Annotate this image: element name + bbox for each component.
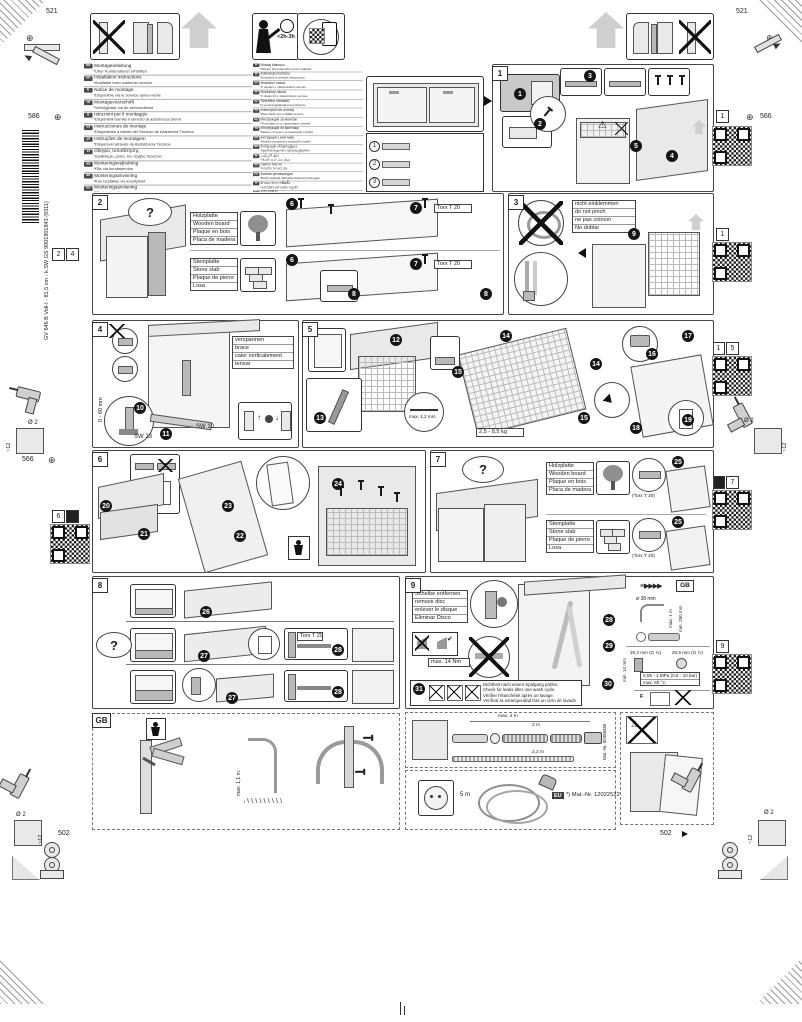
section-ref-box: 5 [726,342,739,355]
part-shape [382,143,410,150]
drain-height-label: max. 1 m [668,598,673,628]
gb-panel-label: GB [92,713,111,728]
drain-diameter-label: ø 38 mm [636,596,656,602]
bracket-detail [632,518,666,552]
dimension-label-521: 521 [736,8,748,15]
language-code-badge: es [84,125,93,130]
question-mark: ? [146,205,154,220]
part-number: 1 [369,141,380,152]
valve-detail [470,580,518,628]
panel-6-label: 6 [92,452,108,467]
language-code-badge: en [84,76,93,81]
clock-icon [280,19,294,33]
drill-diameter-label: Ø 2 [16,812,26,818]
language-entry: frNotice de montage *Disponible via le s… [84,87,252,99]
language-note: *Fås hos kundeservice [84,191,252,192]
counter-edge-figure [412,720,448,760]
step-marker: 30 [602,678,614,690]
step-marker: 6 [286,198,298,210]
language-entry: msArahan pemasangan *Boleh didapati dari… [253,172,363,181]
step-marker: 7 [410,258,422,270]
language-note: *Über Kundendienst erhältlich [84,69,252,74]
language-code-badge: pl [253,73,259,76]
clip-detail [248,628,280,660]
force-label: F [640,694,643,700]
correct-shim-detail [112,356,138,382]
torx-label: (Torx T 20) [632,554,655,559]
language-code-badge: de [84,64,93,69]
registration-crosshair: ⊕ [746,112,754,123]
step-marker: 10 [134,402,146,414]
cross-out-icon [93,20,125,54]
language-entry: esInstrucciones de montaje *Disponibles … [84,124,252,136]
language-code-badge: it [84,113,93,118]
drill-depth-label: ~12 [782,430,788,452]
parts-list-box: 1 2 3 4 5 6 [366,133,484,192]
step-marker: 8 [480,288,492,300]
step-marker: 17 [682,330,694,342]
question-mark: ? [479,462,487,477]
step-marker: 6 [286,254,298,266]
language-entry: enInstallation instructions *Available f… [84,75,252,87]
language-note: *Disponibili tramite il servizio di assi… [84,118,252,123]
wood-option-label: HolzplatteWooden boardPlaque en boisPlac… [546,462,594,495]
water-pressure-box: 0,05 - 1 MPa (0,5 - 10 bar)max. 60 °C [640,672,700,686]
language-list-right: trMontaj kılavuzu *Müşteri hizmetlerinde… [253,63,363,192]
panel-4-label: 4 [92,322,108,337]
dimension-label-502: 502 [660,830,672,837]
drain-min-label: min. 280 mm [678,598,683,632]
disposal-box [146,718,166,740]
question-cloud: ? [96,632,132,658]
skip-to-gb-badge: GB [676,580,694,592]
language-note: *Available from customer service [84,81,252,86]
no-freestanding-panel-warning-box [626,13,714,60]
plinth-mounted-figure [352,628,394,662]
drill-depth-label: ~12 [748,822,754,844]
section-ref-box: 9 [716,640,729,653]
region-badge: EU [552,792,564,799]
language-code-badge: da [84,162,93,167]
panel-1-label: 1 [492,66,508,81]
counter-figure [636,99,708,181]
step-marker: 28 [603,614,615,626]
language-code-badge: pt [84,137,93,142]
step-marker: 7 [410,202,422,214]
torque-label-box: max. 14 Nm [428,658,470,667]
drain-hose-figure [248,738,277,793]
language-code-badge: nl [84,101,93,106]
skip-ahead-arrows: ≡ ▶▶▶▶ [640,582,662,590]
panel-2-label: 2 [92,195,108,210]
p1-detail-step3 [560,68,602,96]
dimension-label-521: 521 [46,8,58,15]
step-marker: 22 [234,530,246,542]
stone-option-label: SteinplatteStone slabPlaque de pierreLos… [190,258,238,291]
qr-scan-phone-box [297,13,345,60]
language-code-badge: ko [253,191,259,192]
language-note: *Dostępna w serwisie fabrycznym [253,77,363,81]
step-marker: 24 [332,478,344,490]
language-code-badge: ru [253,127,259,130]
language-entry: itIstruzioni per il montaggio *Disponibi… [84,112,252,124]
language-note: *Fås via kundeservice [84,167,252,172]
question-mark: ? [110,638,118,653]
dimension-label-586: 586 [28,113,40,120]
language-code-badge: bg [253,118,259,121]
language-entry: ruИнструкция по монтажу *Можно получить … [253,127,363,136]
panel-8-label: 8 [92,578,108,593]
language-entry: plInstrukcja montażu *Dostępna w serwisi… [253,72,363,81]
hose-routing-detail [514,252,568,306]
language-entry: ptInstruções de montagem *Disponível atr… [84,136,252,148]
section-ref-box-dark [66,510,79,523]
step-marker: 20 [100,500,112,512]
language-entry: elΟδηγίες τοποθέτησης *Διαθέσιμες μέσω τ… [84,149,252,161]
language-title: 설치 설명서 [261,191,278,192]
corner-hatch-mark [0,958,46,1004]
panel-weight-label: 2,5 - 8,5 kg [477,429,523,436]
language-title: Montageanleitung [94,63,131,68]
language-entry: ukІнструкція з монтажу *Можна отримати в… [253,136,363,145]
language-code-badge: ms [253,173,259,176]
torx-label: Torx T 20 [435,205,471,212]
wrench-size-label: SW 10 [196,424,214,430]
water-fitting-label: 20,9 mm (G ½) [672,650,703,655]
language-entry: svMonteringsanvisning *Kan beställas via… [84,173,252,185]
cross-out-icon [627,717,657,743]
language-code-badge: ro [253,109,259,112]
hose-segment [452,734,488,743]
language-note: *K dispozícii v zákazníckom servise [253,95,363,99]
step-marker: 15 [578,412,590,424]
step-marker: 27 [226,692,238,704]
weight-label-box: 2,5 - 8,5 kg [476,428,524,437]
template-detail-box [306,378,362,432]
step-marker: 5 [630,140,642,152]
stone-icon-box [596,520,630,554]
language-note: *Διαθέσιμες μέσω του σέρβις πελατών [84,155,252,160]
prohibition-box [614,121,629,136]
language-note: *K dostání u zákaznického servisu [253,86,363,90]
language-code-badge: fr [84,88,93,93]
language-entry: kaმონტაჟის ინსტრუქცია *ხელმისაწვდომია სე… [253,145,363,154]
wood-icon-box [240,211,276,246]
gap-detail: max. 1,2 mm [404,392,444,432]
disposal-icon [296,540,301,545]
part-number: 2 [369,159,380,170]
panel-9-label: 9 [405,578,421,593]
no-freestanding-panel-warning-box [90,13,180,60]
language-code-badge: ar [253,155,259,158]
segment-length-label: 2 m [532,723,540,728]
level-pictogram-box: ↑ ↓ [238,402,292,440]
language-note: *Disponible via le service après-vente [84,93,252,98]
do-not-pinch-label: nicht einklemmendo not pinchne pas coinc… [572,200,636,233]
qr-code [50,524,90,564]
drain-hose-figure [640,604,664,622]
dishwasher-figure [106,236,148,298]
step-marker: 11 [160,428,172,440]
leak-check-box: 31 Dichtheit nach einem Spülgang prüfen.… [410,680,582,706]
language-code-badge: sv [84,174,93,179]
language-code-badge: tr [253,64,259,67]
language-note: *Получава се от сервизната служба [253,122,363,126]
cord-length-label: 5 m [460,792,470,798]
language-entry: ko설치 설명서 *고객 서비스에서 구입 가능 [253,190,363,192]
cross-out-icon [672,690,694,705]
language-note: *A vevőszolgálatnál szerezhető be [253,104,363,108]
hose-part-number: Mat.-Nr. 00358356 [602,716,607,760]
water-fitting-label: 26,4 mm (G ¾) [630,650,661,655]
language-title: Instruções de montagem [94,137,146,142]
language-note: *Disponibles a través del Servicio de As… [84,130,252,135]
corner-detail-box [430,336,460,370]
qr-code [712,654,752,694]
torx-label: (Torx T 20) [632,494,655,499]
step-marker: 19 [682,414,694,426]
tree-icon [603,465,623,482]
section-ref-box: 4 [66,248,79,261]
step-marker: 15 [452,366,464,378]
pointer-arrow [484,96,492,106]
step-marker: 14 [500,330,512,342]
duration-label: <2h-3h [277,34,295,40]
language-entry: deMontageanleitung *Über Kundendienst er… [84,63,252,75]
language-note: *Boleh didapati daripada Khidmat Pelangg… [253,177,363,181]
bracket-detail [632,458,666,492]
orientation-up-arrow [181,12,217,48]
language-note: *متوفر لدى خدمة العملاء [253,158,363,162]
panel-7-label: 7 [430,452,446,467]
stone-option-label: SteinplatteStone slabPlaque de pierreLos… [546,520,594,553]
leak-check-text: Dichtheit nach einem Spülgang prüfen.Che… [483,682,577,704]
language-entry: roInstrucţiuni de montaj *Disponibile pr… [253,108,363,117]
product-code-vertical: GV 646 B Voll-I - 81,5 cm - k.SW GS 9001… [44,130,50,340]
hose-coupling [584,732,602,744]
language-note: *Можно получить в сервисной службе [253,131,363,135]
step-marker: 16 [646,348,658,360]
registration-tick [400,1002,401,1015]
panel-5-label: 5 [302,322,318,337]
question-cloud: ? [462,456,504,483]
barcode [22,130,39,223]
language-note: *ხელმისაწვდომია სერვისცენტრში [253,149,363,153]
pinched-hose-detail [518,200,564,246]
spacer-detail [182,668,216,702]
step-marker: 8 [348,288,360,300]
tree-icon [248,215,268,233]
part-shape [382,179,410,186]
step-marker: 18 [630,422,642,434]
step-marker: 14 [590,358,602,370]
question-cloud: ? [128,198,172,226]
max-height-label: max. 1,1 m [236,752,242,796]
step-marker: 3 [584,70,596,82]
p1-detail-box [648,68,690,96]
language-entry: daMonteringsvejledning *Fås via kundeser… [84,161,252,173]
language-note: *ขอรับได้จากฝ่ายบริการลูกค้า [253,186,363,190]
plinth-variant-figure [130,670,176,704]
hose-segment [502,734,548,743]
gap-label: max. 1,2 mm [409,414,436,419]
step-marker: 31 [413,683,425,695]
wood-icon-box [596,461,630,495]
registration-crosshair: ⊕ [48,455,56,466]
torx-label: Torx T 20 [298,633,322,640]
brace-label: verspannenbracecaler verticalementtensar [232,336,294,369]
section-ref-box: 7 [726,476,739,489]
step-marker: 23 [222,500,234,512]
language-title: Montagevoorschrift [94,100,134,105]
section-ref-box: 1 [716,110,729,123]
step-marker: 21 [138,528,150,540]
p1-detail-box [604,68,646,96]
language-note: *Müşteri hizmetlerinden temin edilebilir [253,67,363,71]
drill-depth-label: ~12 [6,430,12,452]
no-unsupported-door-box: ⚠ [626,716,658,744]
registration-crosshair: ⊕ [54,112,62,123]
warning-triangle-icon: ⚠ [598,120,607,131]
section-ref-box: 1 [716,228,729,241]
cross-out-icon [679,20,711,54]
language-code-badge: he [253,164,259,167]
section-ref-box: 2 [52,248,65,261]
step-marker: 28 [332,644,344,656]
socket-icon [418,780,454,816]
dimension-label-566: 566 [760,113,772,120]
wrench-size-label: SW 13 [134,434,152,440]
language-note: *Disponibile prin unităţile service [253,113,363,117]
door-layers-detail [256,456,310,510]
drill-diameter-label: Ø 2 [28,420,38,426]
cabinet-figure [484,504,526,562]
step-marker: 4 [666,150,678,162]
disposal-box [288,536,310,560]
language-entry: heהוראות התקנה *זמין בשירות הלקוחות [253,163,363,172]
language-note: *Verkrijgbaar via de servicedienst [84,106,252,111]
protective-mesh [648,232,700,296]
step-marker: 26 [200,606,212,618]
plinth-variant-figure [130,628,176,662]
dishwasher-figure [518,584,590,686]
language-code-badge: hu [253,100,259,103]
step-marker: 1 [514,88,526,100]
push-arrow [578,248,586,258]
language-entry: trMontaj kılavuzu *Müşteri hizmetlerinde… [253,63,363,72]
language-entry: bgИнструкция за монтаж *Получава се от с… [253,118,363,127]
dimension-label-566: 566 [22,456,34,463]
language-list-left: deMontageanleitung *Über Kundendienst er… [84,63,252,192]
qr-code [712,356,752,396]
step-marker: 12 [390,334,402,346]
step-marker: 29 [603,640,615,652]
language-entry: arدليل التركيب *متوفر لدى خدمة العملاء [253,154,363,163]
plinth-variant-figure [130,584,176,618]
language-code-badge: th [253,182,259,185]
language-code-badge: sk [253,91,259,94]
step-marker: 2 [534,118,546,130]
torque-label: max. 14 Nm [429,659,469,666]
step-marker: 28 [332,686,344,698]
step-marker: 9 [628,228,640,240]
remove-disc-label: Scheibe entfernenremove discenlever le d… [412,590,468,623]
qr-code [712,490,752,530]
drill-diameter-label: Ø 2 [764,810,774,816]
max-total-length-label: max. 4 m [498,714,518,719]
corner-hatch-mark [0,0,46,46]
registration-tick [404,1006,405,1015]
cabinet-front-figure [366,76,484,132]
qr-code [712,126,752,166]
panel-3-label: 3 [508,195,524,210]
step-marker: 27 [198,650,210,662]
hose-coupling-figure [648,633,680,641]
language-code-badge: el [84,150,93,155]
qr-code [712,242,752,282]
corner-hatch-mark [756,958,802,1004]
drain-connection-detail [468,636,510,678]
segment-length-label: 2,2 m [532,750,544,755]
language-code-badge: ka [253,146,259,149]
registration-crosshair: ⊕ [26,33,34,44]
drill-depth-label: ~12 [38,822,44,844]
tap-check-box: ✔ [412,632,458,656]
language-entry: csMontážní návod *K dostání u zákaznické… [253,81,363,90]
orientation-up-arrow [588,12,624,48]
dimension-label-502: 502 [58,830,70,837]
installer-time-box: <2h-3h [252,13,299,60]
step-marker: 25 [672,516,684,528]
instruction-sheet: 521 ⊕ <2h-3h 521 ⊕ 586 ⊕ GV 646 [0,0,802,1022]
page-curl-icon [760,856,788,880]
language-code-badge: no [84,186,93,191]
water-min-label: min. 10 mm [622,654,627,682]
language-note: *Можна отримати в сервісній службі [253,140,363,144]
step-marker: 13 [314,412,326,424]
cross-out-icon [108,324,126,338]
language-note: *Kan beställas via kundtjänst [84,179,252,184]
language-entry: noMonteringsanvisning *Fås hos kundeserv… [84,185,252,192]
installer-icon [259,20,268,29]
press-detail [594,382,630,418]
language-note: *זמין בשירות הלקוחות [253,167,363,171]
page-curl-icon [12,856,40,880]
torx-label: Torx T 20 [435,261,471,268]
language-entry: skMontážny návod *K dispozícii v zákazní… [253,90,363,99]
language-code-badge: uk [253,136,259,139]
dishwasher-figure [592,244,646,308]
section-ref-box: 6 [52,510,65,523]
part-number: 3 [369,177,380,188]
wood-option-label: HolzplatteWooden boardPlaque en boisPlac… [190,212,238,245]
language-note: *Disponível através da Assistência Técni… [84,142,252,147]
stone-icon-box [240,258,276,292]
cord-part-number: *) Mat.-Nr. 12022522 [566,792,620,798]
step-marker: 25 [672,456,684,468]
language-entry: thคำแนะนำการติดตั้ง *ขอรับได้จากฝ่ายบริก… [253,181,363,190]
height-range-label: 0 - 60 mm [98,386,104,422]
language-entry: nlMontagevoorschrift *Verkrijgbaar via d… [84,100,252,112]
language-entry: huSzerelési útmutató *A vevőszolgálatnál… [253,99,363,108]
language-code-badge: cs [253,82,259,85]
drill-diameter-label: Ø 2 [744,418,754,424]
part-shape [382,161,410,168]
